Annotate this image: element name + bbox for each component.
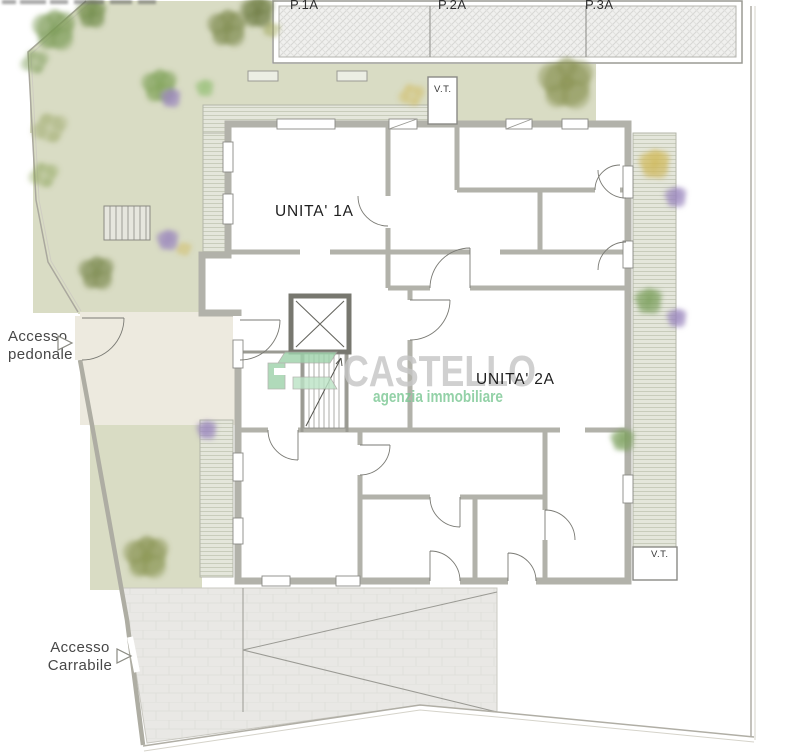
watermark-tagline-text: agenzia immobiliare bbox=[373, 388, 503, 406]
unit-2a-label: UNITA' 2A bbox=[476, 371, 555, 388]
parking-stall-3-label: P.3A bbox=[585, 0, 614, 12]
vt-box-top: V.T. bbox=[428, 77, 457, 124]
garden-stair bbox=[104, 206, 150, 240]
vt-box-bottom: V.T. bbox=[633, 547, 677, 580]
vehicle-access-label-line2: Carrabile bbox=[48, 657, 112, 674]
entry-courtyard bbox=[80, 312, 238, 425]
floor-plan-page: P.1A P.2A P.3A bbox=[0, 0, 800, 754]
parking-stall-1-label: P.1A bbox=[290, 0, 319, 12]
pedestrian-access-label-line2: pedonale bbox=[8, 346, 73, 363]
elevator-shaft bbox=[291, 296, 349, 352]
site-plan-svg: P.1A P.2A P.3A bbox=[0, 0, 800, 754]
parking-stall-2-label: P.2A bbox=[438, 0, 467, 12]
parking-area: P.1A P.2A P.3A bbox=[273, 0, 742, 63]
pedestrian-access-callout: Accesso pedonale bbox=[8, 328, 73, 363]
vt-bottom-label: V.T. bbox=[651, 549, 669, 560]
unit-1a-label: UNITA' 1A bbox=[275, 203, 354, 220]
pedestrian-gate-gap bbox=[75, 316, 85, 360]
internal-stair bbox=[304, 354, 345, 428]
vt-top-label: V.T. bbox=[434, 84, 452, 95]
vehicle-access-label-line1: Accesso bbox=[50, 639, 110, 656]
